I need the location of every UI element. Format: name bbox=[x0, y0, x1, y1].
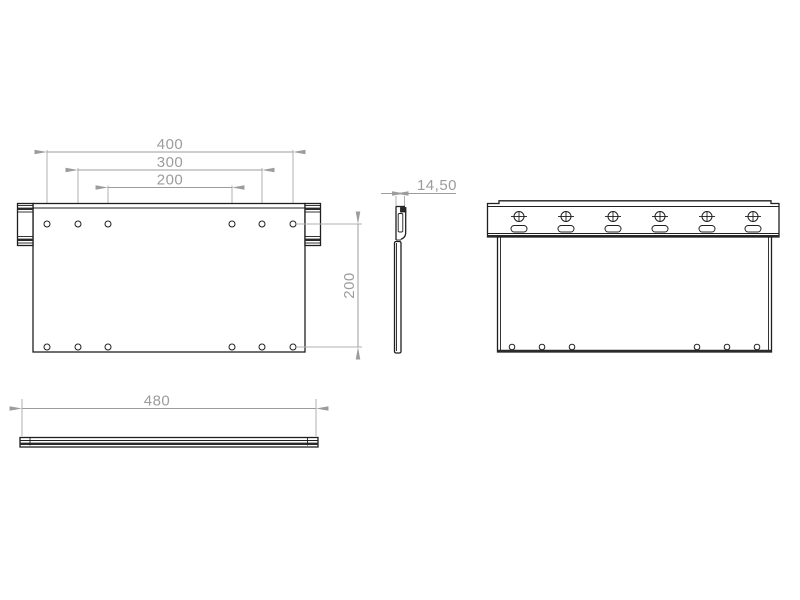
slot-hole bbox=[511, 226, 527, 233]
hole bbox=[105, 221, 111, 227]
back-rail bbox=[488, 201, 780, 237]
dim-label-overall-length: 480 bbox=[144, 393, 171, 410]
dim-label-vertical-span: 200 bbox=[341, 272, 358, 299]
hole bbox=[724, 344, 730, 350]
hole bbox=[290, 344, 296, 350]
dim-label-middle-span: 300 bbox=[157, 154, 184, 171]
hole bbox=[259, 221, 265, 227]
side-profile-plate bbox=[395, 242, 402, 354]
hole bbox=[569, 344, 575, 350]
side-depth-dimension: 14,50 bbox=[381, 177, 457, 207]
hole bbox=[75, 221, 81, 227]
hole bbox=[229, 221, 235, 227]
side-profile-hook bbox=[396, 207, 406, 241]
front-view: 400 300 200 bbox=[18, 136, 363, 352]
technical-drawing-canvas: 400 300 200 bbox=[0, 0, 800, 600]
slot-hole bbox=[652, 226, 668, 233]
hook-right-edge bbox=[401, 212, 406, 240]
hole bbox=[105, 344, 111, 350]
hole bbox=[509, 344, 515, 350]
slot-hole bbox=[745, 226, 761, 233]
hole bbox=[539, 344, 545, 350]
bottom-bar-outline bbox=[20, 438, 318, 448]
dim-label-outer-span: 400 bbox=[157, 136, 184, 153]
back-view bbox=[488, 201, 780, 352]
back-plate-outline bbox=[498, 237, 772, 352]
slot-hole bbox=[699, 226, 715, 233]
back-plate bbox=[498, 237, 772, 352]
hole bbox=[44, 221, 50, 227]
bottom-view: 480 bbox=[20, 393, 318, 448]
hole bbox=[290, 221, 296, 227]
hole bbox=[754, 344, 760, 350]
bottom-bar bbox=[20, 438, 318, 448]
hole bbox=[259, 344, 265, 350]
hole bbox=[44, 344, 50, 350]
dim-label-depth-value: 14,50 bbox=[417, 177, 457, 194]
side-view: 14,50 bbox=[381, 177, 457, 353]
slot-hole bbox=[605, 226, 621, 233]
side-plate-outline bbox=[395, 242, 402, 354]
hook-top-tab bbox=[401, 208, 407, 213]
hook-inner-channel bbox=[398, 214, 403, 233]
front-left-bracket bbox=[18, 204, 34, 246]
hole bbox=[694, 344, 700, 350]
bottom-length-dimension: 480 bbox=[22, 393, 316, 437]
dim-label-inner-span: 200 bbox=[157, 172, 184, 189]
hole bbox=[229, 344, 235, 350]
slot-hole bbox=[558, 226, 574, 233]
hole bbox=[75, 344, 81, 350]
